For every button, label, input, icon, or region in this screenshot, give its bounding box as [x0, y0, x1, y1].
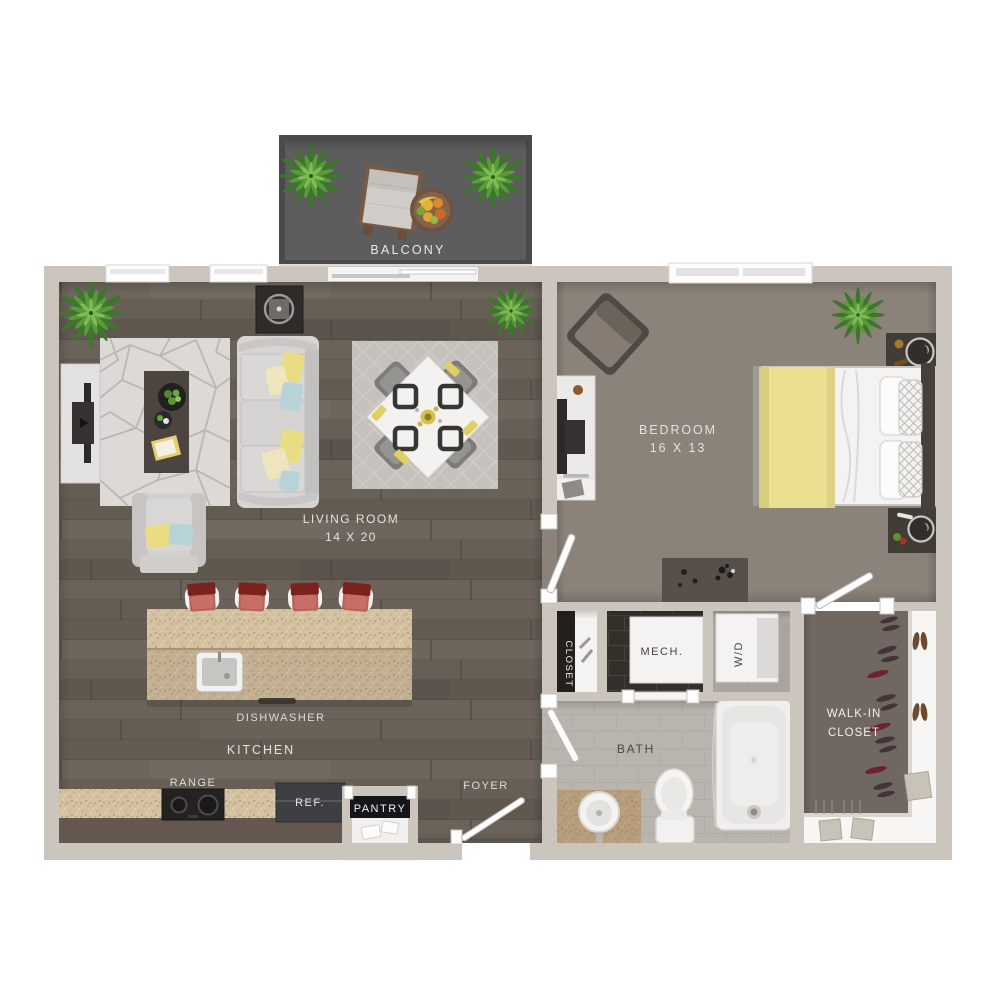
svg-text:KITCHEN: KITCHEN	[227, 743, 295, 757]
svg-text:CLOSET: CLOSET	[563, 640, 574, 687]
svg-text:MECH.: MECH.	[641, 646, 684, 658]
svg-text:16 X 13: 16 X 13	[650, 441, 706, 455]
svg-text:BATH: BATH	[617, 742, 655, 756]
svg-text:14 X 20: 14 X 20	[325, 530, 377, 544]
svg-text:DISHWASHER: DISHWASHER	[236, 712, 325, 724]
svg-text:PANTRY: PANTRY	[354, 803, 407, 815]
svg-text:REF.: REF.	[295, 797, 325, 809]
svg-text:WALK-IN: WALK-IN	[827, 708, 882, 720]
svg-text:BALCONY: BALCONY	[370, 243, 445, 257]
svg-text:RANGE: RANGE	[170, 777, 217, 789]
svg-text:LIVING ROOM: LIVING ROOM	[303, 512, 400, 526]
svg-text:FOYER: FOYER	[463, 780, 508, 792]
svg-text:BEDROOM: BEDROOM	[639, 423, 717, 437]
svg-text:W/D: W/D	[733, 641, 745, 667]
svg-text:CLOSET: CLOSET	[828, 727, 880, 739]
